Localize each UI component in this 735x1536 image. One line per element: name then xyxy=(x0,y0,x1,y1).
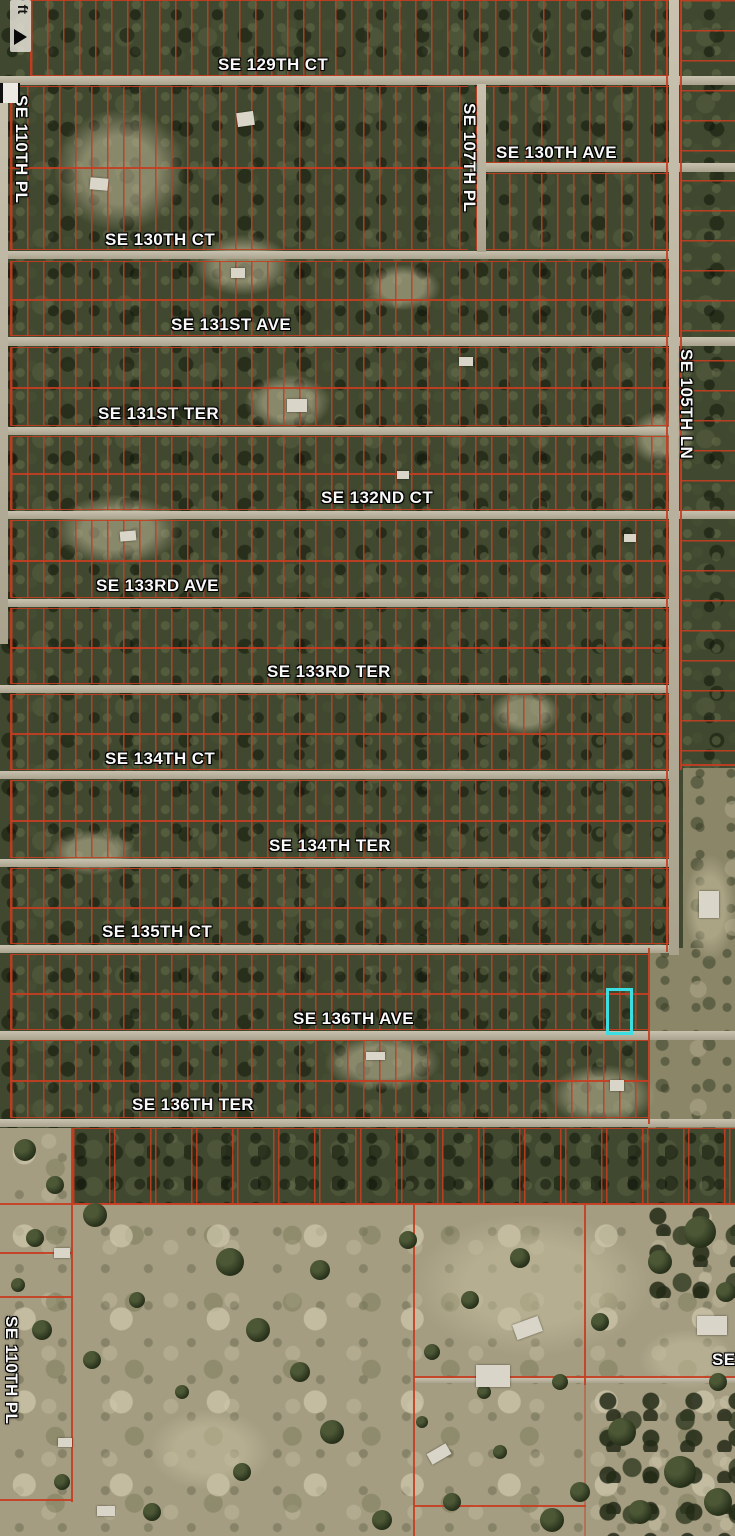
street-label: SE 136TH TER xyxy=(132,1095,254,1115)
building-roof xyxy=(397,471,409,479)
building-roof xyxy=(120,530,137,541)
street-label: SE 105TH LN xyxy=(676,349,696,459)
street-label: SE 129TH CT xyxy=(218,55,328,75)
parcel-block xyxy=(476,173,672,250)
tree xyxy=(83,1203,107,1227)
street-label: SE 136TH AVE xyxy=(293,1009,414,1029)
tree xyxy=(233,1463,251,1481)
tree xyxy=(540,1508,564,1532)
street-label: SE xyxy=(712,1350,735,1370)
street-label: SE 132ND CT xyxy=(321,488,433,508)
tree xyxy=(591,1313,609,1331)
street-label: SE 134TH CT xyxy=(105,749,215,769)
tree xyxy=(320,1420,344,1444)
parcel-block xyxy=(72,1128,735,1204)
street-label: SE 130TH CT xyxy=(105,230,215,250)
tree xyxy=(416,1416,428,1428)
scale-label: 0 ft xyxy=(15,0,31,14)
street-label: SE 110TH PL xyxy=(11,95,31,203)
road-horizontal xyxy=(0,251,678,259)
tree xyxy=(246,1318,270,1342)
building-roof xyxy=(58,1438,72,1447)
road-horizontal xyxy=(470,163,735,172)
tree xyxy=(129,1292,145,1308)
parcel-block xyxy=(10,261,672,336)
street-label: SE 130TH AVE xyxy=(496,143,617,163)
tree xyxy=(14,1139,36,1161)
road-horizontal xyxy=(0,599,678,607)
street-label: SE 133RD AVE xyxy=(96,576,219,596)
tree xyxy=(399,1231,417,1249)
road-horizontal xyxy=(0,511,735,519)
road-horizontal xyxy=(0,859,678,867)
tree xyxy=(628,1500,652,1524)
parcel-block xyxy=(30,0,672,76)
road-horizontal xyxy=(0,945,678,953)
parcel-boundary-line xyxy=(413,1205,415,1536)
tree xyxy=(704,1488,732,1516)
parcel-boundary-line xyxy=(648,948,650,1124)
street-label: SE 131ST TER xyxy=(98,404,219,424)
aerial-map[interactable]: SE 129TH CTSE 130TH AVESE 130TH CTSE 131… xyxy=(0,0,735,1536)
road-horizontal xyxy=(0,771,678,779)
parcel-boundary-line xyxy=(681,764,735,766)
parcel-boundary-line xyxy=(414,1376,735,1378)
parcel-boundary-line xyxy=(0,1499,73,1501)
tree xyxy=(684,1216,716,1248)
street-label: SE 131ST AVE xyxy=(171,315,291,335)
parcel-boundary-line xyxy=(0,1203,735,1205)
building-roof xyxy=(624,534,636,542)
parcel-block xyxy=(10,1040,648,1118)
tree xyxy=(216,1248,244,1276)
tree xyxy=(143,1503,161,1521)
building-roof xyxy=(476,1365,510,1387)
tree xyxy=(608,1418,636,1446)
street-label: SE 107TH PL xyxy=(459,103,479,212)
building-roof xyxy=(90,177,109,191)
street-label: SE 135TH CT xyxy=(102,922,212,942)
parcel-boundary-line xyxy=(414,1505,586,1507)
building-roof xyxy=(610,1080,624,1091)
tree xyxy=(552,1374,568,1390)
tree xyxy=(83,1351,101,1369)
building-roof xyxy=(459,357,473,366)
parcel-boundary-line xyxy=(0,1296,73,1298)
street-label: SE 134TH TER xyxy=(269,836,391,856)
tree xyxy=(424,1344,440,1360)
road-horizontal xyxy=(414,1378,735,1383)
pointer-triangle-icon xyxy=(14,29,27,45)
tree xyxy=(648,1250,672,1274)
scale-bar-corner xyxy=(0,83,20,103)
tree xyxy=(493,1445,507,1459)
tree xyxy=(570,1482,590,1502)
tree xyxy=(32,1320,52,1340)
street-label: SE 110TH PL xyxy=(1,1316,21,1424)
building-roof xyxy=(287,399,307,412)
tree xyxy=(26,1229,44,1247)
tree xyxy=(664,1456,696,1488)
parcel-boundary-line xyxy=(666,0,668,952)
tree xyxy=(310,1260,330,1280)
tree xyxy=(11,1278,25,1292)
tree xyxy=(372,1510,392,1530)
building-roof xyxy=(54,1248,70,1258)
tree xyxy=(175,1385,189,1399)
road-horizontal xyxy=(0,76,735,85)
tree xyxy=(716,1282,735,1302)
tree xyxy=(54,1474,70,1490)
road-horizontal xyxy=(0,685,678,693)
building-roof xyxy=(699,891,719,918)
building-roof xyxy=(231,268,245,278)
building-roof xyxy=(97,1506,115,1516)
road-horizontal xyxy=(0,337,735,346)
tree xyxy=(290,1362,310,1382)
road-horizontal xyxy=(0,1119,735,1127)
road-horizontal xyxy=(0,427,678,435)
tree xyxy=(477,1385,491,1399)
tree xyxy=(510,1248,530,1268)
road-vertical xyxy=(0,84,8,644)
street-label: SE 133RD TER xyxy=(267,662,391,682)
selected-parcel-highlight[interactable] xyxy=(606,988,633,1035)
building-roof xyxy=(697,1316,727,1335)
building-roof xyxy=(366,1052,385,1060)
parcel-boundary-line xyxy=(584,1385,586,1536)
road-vertical xyxy=(669,0,679,955)
tree xyxy=(461,1291,479,1309)
parcel-boundary-line xyxy=(584,1205,586,1385)
building-roof xyxy=(236,111,255,127)
tree xyxy=(709,1373,727,1391)
tree xyxy=(46,1176,64,1194)
parcel-block xyxy=(10,86,468,250)
tree xyxy=(443,1493,461,1511)
